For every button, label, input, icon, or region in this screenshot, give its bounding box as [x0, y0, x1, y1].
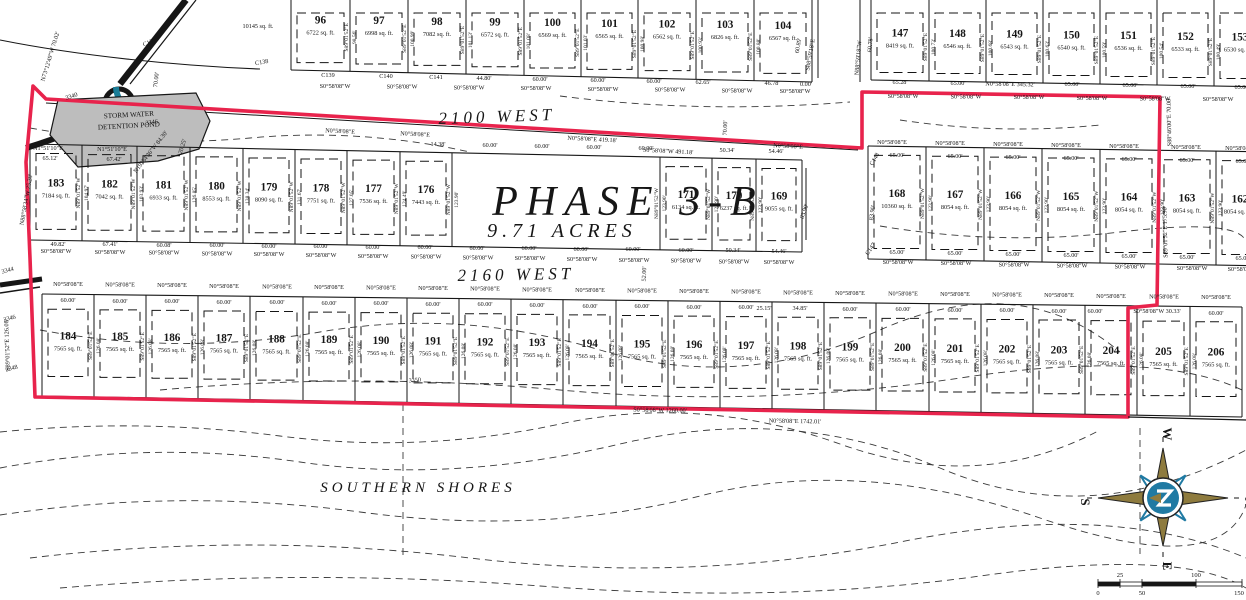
lot-area: 6533 sq. ft.	[1171, 46, 1200, 53]
dimension-label: 60.00'	[417, 244, 432, 251]
dimension-label: 65.00'	[889, 249, 904, 256]
bearing-row-label: S0°58'08"W	[888, 93, 919, 100]
lot-number: 184	[60, 330, 77, 342]
bearing-row-label: N0°58'08"E	[157, 282, 187, 289]
bearing-row-label: S0°58'08"W	[951, 94, 982, 101]
bearing-row-label: S0°58'08"W	[521, 85, 552, 92]
lot-area: 6572 sq. ft.	[481, 31, 510, 38]
bearing-row-label: S0°58'08"W	[149, 250, 180, 257]
dimension-label: 60.00'	[1051, 308, 1066, 315]
side-bearing-label: N89°01'52"W	[236, 180, 243, 212]
lot-area: 7565 sq. ft.	[1149, 361, 1178, 368]
dimension-label: 60.00'	[582, 303, 597, 310]
lot-area: 8054 sq. ft.	[999, 205, 1028, 212]
survey-note-label: N0°58'08"E 1742.01'	[769, 418, 822, 426]
side-bearing-label: N89°01'52"W	[977, 188, 984, 220]
lot-area: 9055 sq. ft.	[765, 206, 794, 213]
compass-letter-top: W	[1160, 428, 1175, 441]
survey-note-label: S89°01'52"E 175.90'	[1162, 206, 1170, 258]
survey-note-label: 70.00'	[722, 120, 730, 135]
dimension-label: 60.00'	[365, 244, 380, 251]
bearing-row-label: S0°58'08"W	[1057, 263, 1088, 270]
lot-number: 200	[894, 342, 911, 354]
street-label-southern-shores: SOUTHERN SHORES	[320, 480, 515, 496]
compass-letter-bottom: E	[1160, 562, 1175, 571]
side-bearing-label: S89°01'52"E	[1207, 37, 1214, 66]
lot-number: 100	[544, 17, 561, 29]
bearing-row-label: N0°58'08"E	[783, 289, 813, 296]
side-depth-label: 123.90'	[454, 192, 460, 208]
lot-number: 192	[477, 336, 494, 348]
side-depth-label: 104.97'	[84, 185, 90, 201]
lot-number: 96	[315, 14, 327, 26]
lot-area: 7565 sq. ft.	[993, 359, 1022, 366]
lot-area: 7042 sq. ft.	[95, 193, 124, 200]
lot-area: 7565 sq. ft.	[106, 346, 135, 353]
dimension-label: 60.00'	[373, 300, 388, 307]
dimension-label: 60.00'	[947, 307, 962, 314]
bearing-row-label: S0°58'08"W	[515, 255, 546, 262]
dimension-label: 60.00'	[529, 302, 544, 309]
lot-area: 7565 sq. ft.	[315, 349, 344, 356]
bearing-row-label: N0°58'08"E	[470, 286, 500, 293]
lot-number: 180	[208, 180, 225, 192]
lot-number: 99	[489, 16, 501, 28]
side-depth-label: 100.73'	[931, 39, 937, 55]
side-depth-label: 126.08'	[1087, 352, 1093, 368]
lot-number: 206	[1208, 347, 1225, 359]
dimension-label: 54.46'	[771, 248, 786, 255]
survey-note-label: S0°58'08"W 30.33'	[1133, 308, 1180, 315]
bearing-row-label: N0°58'08"E	[679, 288, 709, 295]
lot-number: 181	[155, 179, 172, 191]
side-bearing-label: N89°01'52"W	[183, 179, 190, 211]
lot-number: 190	[373, 335, 390, 347]
dimension-label: 65.00'	[1234, 84, 1246, 91]
dimension-label: 65.00'	[889, 152, 904, 159]
dimension-label: 60.00'	[999, 307, 1014, 314]
lot-number: 187	[216, 333, 233, 345]
side-bearing-label: N89°01'52"W	[75, 177, 82, 209]
lot-number: 185	[112, 331, 129, 343]
lot-number: 201	[947, 343, 964, 355]
lot-area: 8054 sq. ft.	[1224, 209, 1246, 216]
dimension-label: 67.41'	[102, 241, 117, 248]
side-depth-label: 126.08'	[96, 338, 102, 354]
dimension-label: 60.00'	[625, 246, 640, 253]
lot-number: 163	[1179, 193, 1196, 205]
bearing-row-label: S0°58'08"W	[95, 249, 126, 256]
bearing-row-label: N0°58'08"E	[575, 287, 605, 294]
survey-note-label: 52.00'	[641, 266, 649, 281]
lot-number: 162	[1232, 194, 1246, 206]
lot-number: 196	[686, 339, 703, 351]
lot-area: 7565 sq. ft.	[941, 358, 970, 365]
bearing-row-label: N0°58'08"E	[1201, 294, 1231, 301]
lot-number: 148	[949, 28, 966, 40]
side-depth-label: 101.13'	[468, 32, 474, 48]
lot-area: 7565 sq. ft.	[628, 354, 657, 361]
lot-number: 177	[365, 183, 382, 195]
lot-area: 7565 sq. ft.	[54, 345, 83, 352]
lot-number: 150	[1063, 29, 1080, 41]
dimension-label: 60.00'	[164, 298, 179, 305]
side-depth-label: 126.08'	[200, 339, 206, 355]
side-bearing-label: N89°01'52"W	[1035, 189, 1042, 221]
scale-label: 0	[1096, 590, 1099, 597]
lot-area: 6530 sq. ft.	[1224, 46, 1246, 53]
lot-number: 205	[1155, 346, 1172, 358]
dimension-label: 65.00'	[1179, 157, 1194, 164]
lot-area: 8090 sq. ft.	[255, 196, 284, 203]
lot-area: 7565 sq. ft.	[523, 352, 552, 359]
side-depth-label: 127.05'	[349, 190, 355, 206]
side-bearing-label: S89°01'52"E	[979, 33, 986, 62]
lot-number: 183	[48, 177, 65, 189]
bearing-row-label: S0°58'08"W	[463, 254, 494, 261]
side-bearing-label: S89°01'52"E	[689, 31, 696, 60]
side-bearing-label: N89°01'52"W	[445, 183, 452, 215]
lot-number: 204	[1103, 345, 1120, 357]
side-bearing-label: S89°01'52"E	[922, 32, 929, 61]
dimension-label: 65.00'	[947, 153, 962, 160]
side-depth-label: 100.99'	[410, 31, 416, 47]
side-depth-label: 126.08'	[722, 347, 728, 363]
dimension-label: 65.28'	[892, 79, 907, 86]
survey-note-label: 3350	[408, 376, 421, 384]
dimension-label: 65.00'	[1179, 254, 1194, 261]
bearing-row-label: N0°58'08"E	[1051, 142, 1081, 149]
lot-number: 166	[1005, 190, 1022, 202]
bearing-row-label: S0°58'08"W	[1177, 265, 1208, 272]
side-bearing-label: S89°01'52"E	[747, 32, 754, 61]
survey-note-label: N1°51'10"E	[97, 146, 127, 153]
side-depth-label: 126.08'	[878, 349, 884, 365]
lot-area: 7082 sq. ft.	[423, 31, 452, 38]
lot-area: 7565 sq. ft.	[680, 354, 709, 361]
lot-area: 6998 sq. ft.	[365, 30, 394, 37]
bearing-row-label: N0°58'08"E	[627, 288, 657, 295]
bearing-row-label: S0°58'08"W	[588, 86, 619, 93]
bearing-row-label: S0°58'08"W	[41, 248, 72, 255]
bearing-row-label: S0°58'08"W	[1014, 94, 1045, 101]
side-depth-label: 123.90'	[1102, 198, 1108, 214]
lot-area: 8553 sq. ft.	[202, 195, 231, 202]
lot-number: 97	[373, 15, 385, 27]
side-bearing-label: S89°01'52"E	[504, 337, 511, 366]
dimension-label: 60.00'	[573, 246, 588, 253]
scale-bar-segment	[1196, 582, 1242, 586]
side-bearing-label: S89°01'52"E	[517, 27, 524, 56]
dimension-label: 60.00'	[738, 304, 753, 311]
side-bearing-label: N89°01'52"W	[1093, 190, 1100, 222]
side-depth-label: 126.08'	[774, 347, 780, 363]
survey-note-label: N0°58'08"E 345.32'	[985, 81, 1035, 89]
bearing-row-label: N0°58'08"E	[731, 289, 761, 296]
lot-number: 193	[529, 337, 546, 349]
dimension-label: 60.00'	[425, 301, 440, 308]
lot-number: 202	[999, 344, 1016, 356]
dimension-label: 60.00'	[209, 242, 224, 249]
side-depth-label: 126.08'	[461, 343, 467, 359]
dimension-label: C140	[379, 73, 392, 80]
bearing-row-label: N0°58'08"E	[209, 283, 239, 290]
lot-number: 189	[321, 334, 338, 346]
lot-area: 7565 sq. ft.	[1202, 362, 1231, 369]
bearing-row-label: S0°58'08"W	[671, 258, 702, 265]
phase-title: PHASE 3-B	[491, 179, 763, 225]
lot-area: 7565 sq. ft.	[784, 356, 813, 363]
lot-number: 203	[1051, 344, 1068, 356]
lot-area: 7751 sq. ft.	[307, 197, 336, 204]
lot-area: 7536 sq. ft.	[359, 198, 388, 205]
dimension-label: 60.00'	[590, 77, 605, 84]
lot-number: 167	[947, 189, 964, 201]
dimension-label: 50.34'	[719, 147, 734, 154]
dimension-label: 65.00'	[1064, 81, 1079, 88]
bearing-row-label: S0°58'08"W	[411, 254, 442, 261]
dimension-label: 62.65'	[695, 79, 710, 86]
lot-area: 7565 sq. ft.	[262, 348, 291, 355]
lot-number: 101	[601, 18, 618, 30]
lot-number: 153	[1232, 31, 1246, 43]
lot-number: 169	[771, 191, 788, 203]
side-depth-label: 126.08'	[1035, 351, 1041, 367]
side-bearing-label: N89°01'52"W	[1209, 192, 1216, 224]
lot-area: 7565 sq. ft.	[732, 355, 761, 362]
dimension-label: C141	[429, 74, 442, 81]
side-depth-label: 123.90'	[986, 196, 992, 212]
bearing-row-label: N0°58'08"E	[1096, 293, 1126, 300]
dimension-label: 65.00'	[1063, 252, 1078, 259]
dimension-label: 65.00'	[1121, 156, 1136, 163]
dimension-label: 0.00'	[800, 81, 812, 88]
lot-area: 7565 sq. ft.	[419, 351, 448, 358]
side-bearing-label: S89°01'52"E	[401, 24, 408, 53]
lot-number: 164	[1121, 192, 1138, 204]
scale-label: 50	[1139, 590, 1146, 597]
bearing-row-label: S0°58'08"W	[454, 84, 485, 91]
side-bearing-label: S89°01'52"E	[609, 338, 616, 367]
lot-area: 7443 sq. ft.	[412, 199, 441, 206]
bearing-row-label: N0°58'08"E	[888, 290, 918, 297]
dimension-label: 65.00'	[1235, 158, 1246, 165]
bearing-row-label: N0°58'08"E	[935, 140, 965, 147]
bearing-row-label: S0°58'08"W	[719, 258, 750, 265]
side-bearing-label: S89°01'52"E	[452, 336, 459, 365]
dimension-label: 60.00'	[532, 76, 547, 83]
dimension-label: 25.15'	[756, 305, 771, 312]
bearing-row-label: S0°58'08"W	[254, 251, 285, 258]
bearing-row-label: N0°58'08"E	[53, 281, 83, 288]
bearing-row-label: N0°58'08"E	[1109, 143, 1139, 150]
plat-map: STORM WATERDETENTION POND966722 sq. ft.9…	[0, 0, 1246, 600]
bearing-row-label: N0°58'08"E	[418, 285, 448, 292]
lot-number: 149	[1006, 29, 1023, 41]
side-bearing-label: N89°01'52"W	[288, 180, 295, 212]
dimension-label: 60.00'	[842, 306, 857, 313]
scale-label: 150	[1234, 590, 1244, 597]
side-bearing-label: S89°01'52"E	[348, 335, 355, 364]
dimension-label: 60.00'	[112, 298, 127, 305]
dimension-label: 65.00'	[1122, 82, 1137, 89]
lot-number: 165	[1063, 191, 1080, 203]
lot-area: 7565 sq. ft.	[1097, 360, 1126, 367]
side-bearing-label: S89°01'52"E	[1093, 35, 1100, 64]
side-depth-label: 126.08'	[983, 350, 989, 366]
side-bearing-label: S89°01'52"E	[296, 334, 303, 363]
side-depth-label: 100.98'	[640, 36, 646, 52]
lot-number: 103	[717, 19, 734, 31]
lot-number: 199	[842, 341, 859, 353]
side-bearing-label: S89°01'52"E	[1036, 34, 1043, 63]
bearing-row-label: N0°58'08"E	[105, 282, 135, 289]
lot-number: 182	[101, 178, 118, 190]
lot-area: 7565 sq. ft.	[888, 357, 917, 364]
side-bearing-label: S89°01'52"E	[713, 340, 720, 369]
dimension-label: 65.00'	[1180, 83, 1195, 90]
lot-number: 194	[581, 338, 598, 350]
side-depth-label: 138.34'	[245, 188, 251, 204]
side-depth-label: 126.08'	[565, 344, 571, 360]
bearing-row-label: S0°58'08"W	[1115, 264, 1146, 271]
dimension-label: 60.00'	[321, 300, 336, 307]
side-depth-label: 100.63'	[1045, 41, 1051, 57]
dimension-label: 60.00'	[586, 144, 601, 151]
side-bearing-label: S89°01'52"E	[817, 341, 824, 370]
lot-area: 7565 sq. ft.	[1045, 359, 1074, 366]
side-bearing-label: N89°01'52"W	[393, 182, 400, 214]
bearing-row-label: S0°58'08"W	[1203, 96, 1234, 103]
side-depth-label: 123.90'	[1218, 200, 1224, 216]
bearing-row-label: S0°58'08"W	[619, 257, 650, 264]
side-depth-label: 100.68'	[988, 40, 994, 56]
dimension-label: 60.00'	[1208, 310, 1223, 317]
dimension-label: 60.00'	[634, 303, 649, 310]
lot-number: 151	[1120, 30, 1137, 42]
bearing-row-label: S0°58'08"W	[567, 256, 598, 263]
side-depth-label: 126.08'	[1139, 352, 1145, 368]
side-bearing-label: S89°01'52"E	[343, 23, 350, 52]
side-depth-label: 126.08'	[357, 341, 363, 357]
lot-area: 7565 sq. ft.	[367, 350, 396, 357]
side-depth-label: 101.08'	[526, 33, 532, 49]
side-depth-label: 98.56'	[352, 31, 358, 44]
lot-area: 8419 sq. ft.	[886, 42, 915, 49]
bearing-row-label: S0°58'08"W	[358, 253, 389, 260]
bearing-row-label: N0°58'08"E	[522, 286, 552, 293]
lot-area: 6543 sq. ft.	[1000, 44, 1029, 51]
dimension-label: 60.00'	[60, 297, 75, 304]
side-bearing-label: N89°01'52"W	[130, 178, 137, 210]
side-bearing-label: S89°01'52"E	[765, 341, 772, 370]
side-depth-label: 126.08'	[826, 348, 832, 364]
side-depth-label: 101.03'	[583, 35, 589, 51]
side-depth-label: 100.93'	[698, 37, 704, 53]
lot-number: 197	[738, 340, 755, 352]
side-depth-label: 126.08'	[1192, 353, 1198, 369]
bearing-row-label: S0°58'08"W	[387, 84, 418, 91]
dimension-label: 65.00'	[1005, 251, 1020, 258]
bearing-row-label: N0°58'08"E	[1044, 292, 1074, 299]
dimension-label: 50.34'	[725, 247, 740, 254]
survey-note-label: S0°58'08"W 1260.00'	[633, 407, 687, 415]
lot-area: 6567 sq. ft.	[769, 35, 798, 42]
lot-number: 179	[261, 181, 278, 193]
side-bearing-label: S89°01'52"E	[87, 331, 94, 360]
side-bearing-label: S89°01'52"E	[869, 342, 876, 371]
lot-area: 6933 sq. ft.	[149, 194, 178, 201]
lot-number: 104	[775, 20, 792, 32]
side-bearing-label: S89°01'52"E	[191, 332, 198, 361]
side-depth-label: 124.49'	[402, 191, 408, 207]
side-bearing-label: S89°01'52"E	[243, 333, 250, 362]
dimension-label: C139	[321, 72, 334, 79]
bearing-row-label: S0°58'08"W	[1228, 266, 1246, 273]
lot-area: 7565 sq. ft.	[471, 351, 500, 358]
lot-area: 7565 sq. ft.	[158, 347, 187, 354]
lot-number: 188	[268, 333, 285, 345]
side-depth-label: 123.90'	[928, 195, 934, 211]
dimension-label: 60.00'	[678, 247, 693, 254]
dimension-label: 60.00'	[646, 78, 661, 85]
bearing-row-label: S0°58'08"W	[320, 83, 351, 90]
dimension-label: 60.00'	[313, 243, 328, 250]
lot-number: 152	[1177, 31, 1194, 43]
lot-area: 7184 sq. ft.	[42, 192, 71, 199]
dimension-label: 65.00'	[950, 80, 965, 87]
scale-bar-segment	[1142, 582, 1196, 586]
side-depth-label: 126.08'	[148, 338, 154, 354]
side-bearing-label: N89°01'52"W	[340, 181, 347, 213]
side-bearing-label: S89°01'52"E	[556, 338, 563, 367]
side-bearing-label: S89°01'52"E	[1026, 344, 1033, 373]
side-bearing-label: N89°01'52"W	[919, 187, 926, 219]
side-bearing-label: S89°01'52"E	[1183, 346, 1190, 375]
lot-number: 191	[425, 336, 442, 348]
bearing-row-label: N0°58'08"E	[366, 285, 396, 292]
lot-number: 147	[892, 27, 909, 39]
lot-area: 8054 sq. ft.	[1057, 206, 1086, 213]
lot-area: 6722 sq. ft.	[306, 29, 335, 36]
lot-number: 195	[634, 339, 651, 351]
lot-number: 98	[431, 16, 443, 28]
lot-area: 8054 sq. ft.	[1115, 207, 1144, 214]
dimension-label: 60.08'	[156, 242, 171, 249]
side-depth-label: 126.08'	[670, 346, 676, 362]
scale-label: 25	[1117, 572, 1124, 579]
dimension-label: 44.80'	[476, 75, 491, 82]
lot-area: 7565 sq. ft.	[836, 356, 865, 363]
survey-note-label: N1°51'10"E	[33, 145, 63, 152]
dimension-label: 60.00'	[534, 143, 549, 150]
lot-number: 178	[313, 182, 330, 194]
survey-note-label: S88°46'00"E 70.00'	[1166, 98, 1174, 147]
survey-note-label: 60.78'	[866, 37, 874, 53]
side-bearing-label: S89°01'52"E	[661, 339, 668, 368]
dimension-label: 60.00'	[1087, 308, 1102, 315]
bearing-row-label: S0°58'08"W	[1077, 95, 1108, 102]
side-bearing-label: S89°01'52"E	[631, 29, 638, 58]
side-depth-label: 100.59'	[1102, 42, 1108, 58]
side-bearing-label: S89°01'52"E	[1130, 346, 1137, 375]
dimension-label: 49.82'	[50, 241, 65, 248]
lot-area: 8054 sq. ft.	[941, 204, 970, 211]
dimension-label: 60.00'	[521, 245, 536, 252]
lot-area: 6540 sq. ft.	[1057, 44, 1086, 51]
lot-area: 8054 sq. ft.	[1173, 208, 1202, 215]
scale-bar-segment	[1120, 582, 1142, 586]
